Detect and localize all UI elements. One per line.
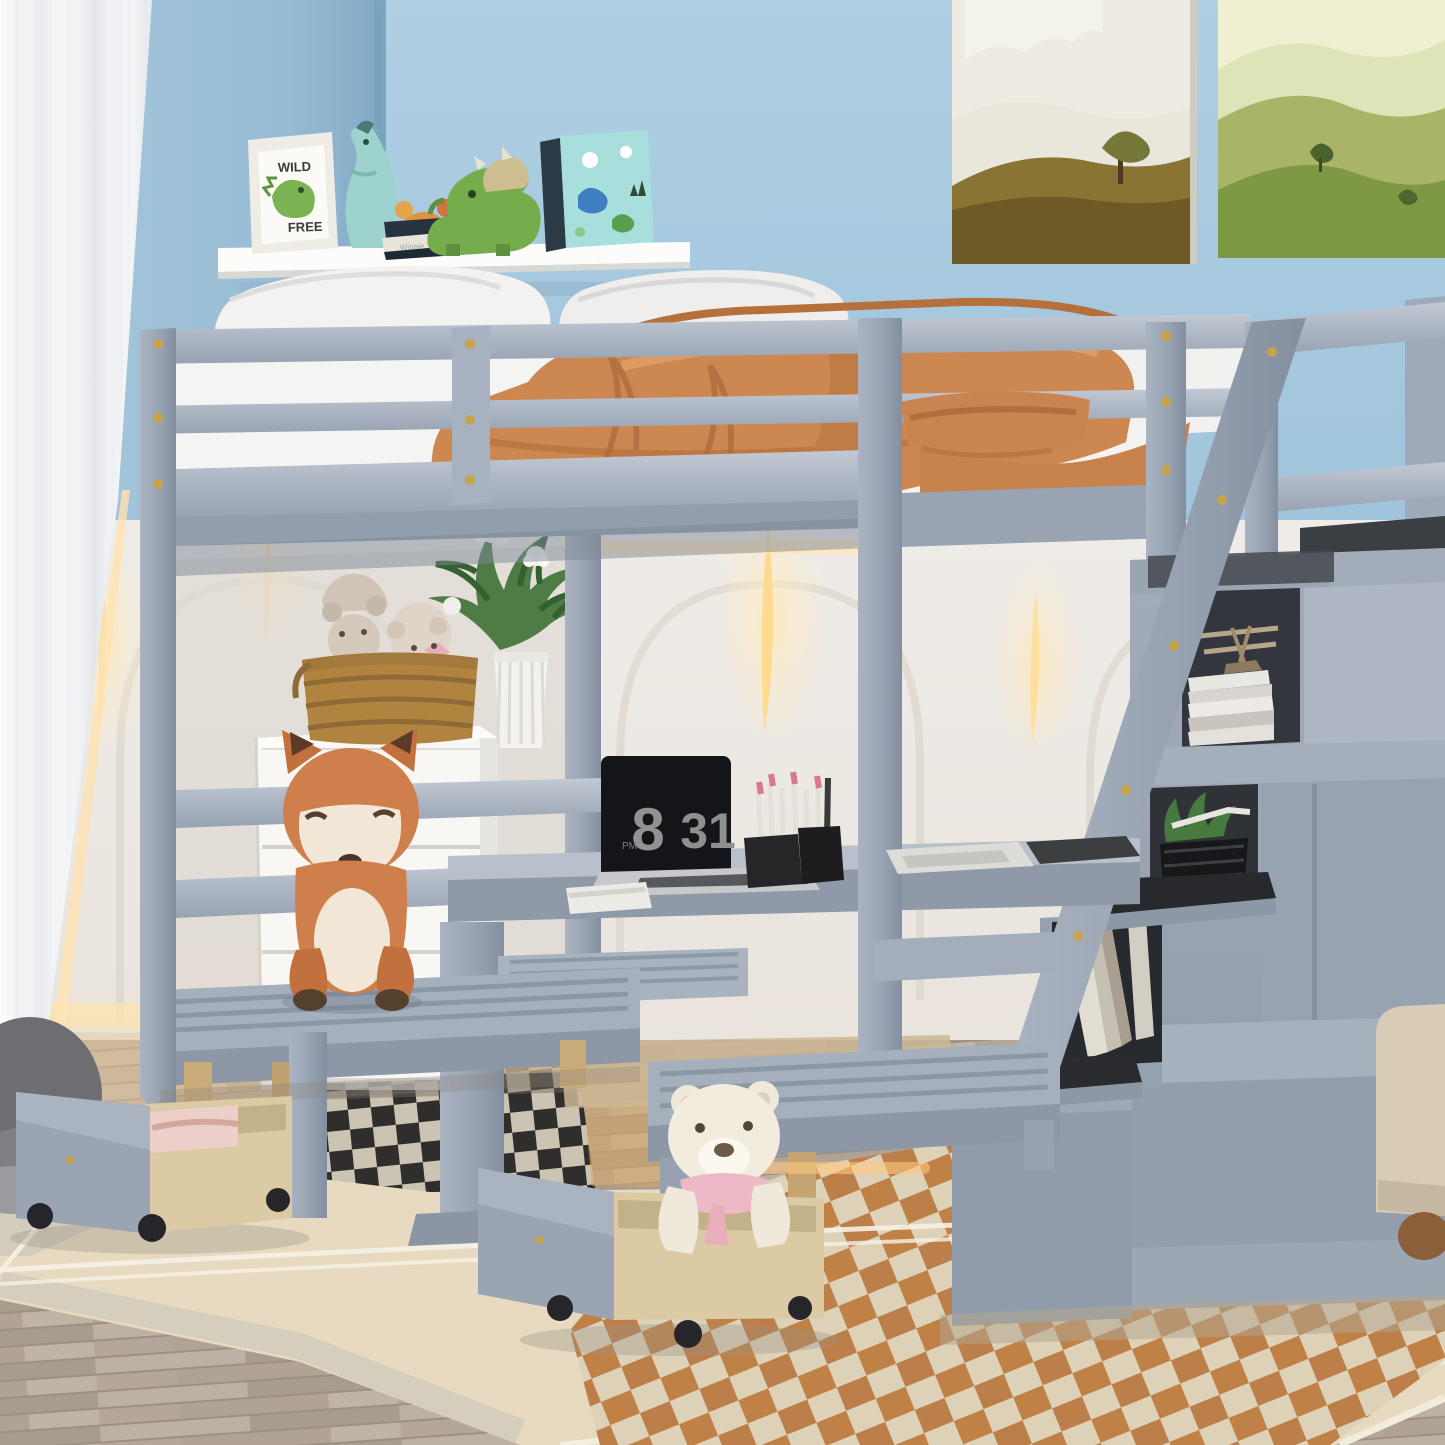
- svg-text:WILD: WILD: [278, 159, 312, 175]
- svg-text:31: 31: [680, 803, 736, 859]
- svg-text:8: 8: [631, 796, 664, 863]
- svg-text:PM: PM: [622, 841, 637, 852]
- svg-text:FREE: FREE: [288, 219, 324, 235]
